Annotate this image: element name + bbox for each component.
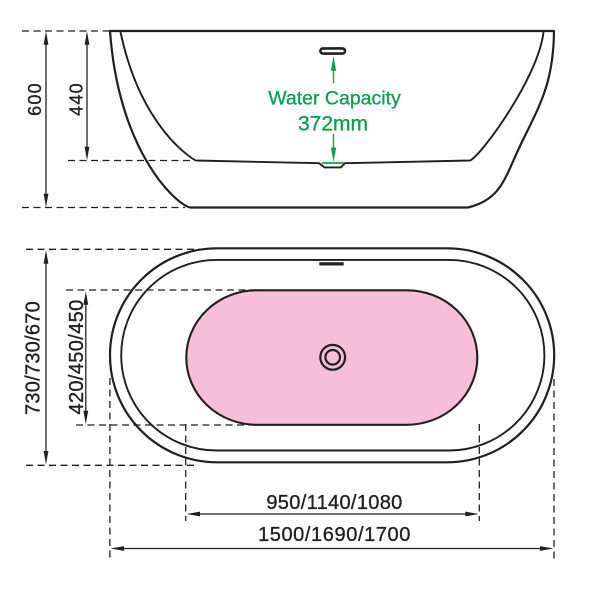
svg-text:950/1140/1080: 950/1140/1080 xyxy=(266,492,402,514)
svg-text:600: 600 xyxy=(25,82,45,116)
svg-text:372mm: 372mm xyxy=(298,113,368,136)
svg-text:Water Capacity: Water Capacity xyxy=(268,88,401,110)
svg-text:420/450/450: 420/450/450 xyxy=(66,299,88,414)
svg-text:730/730/670: 730/730/670 xyxy=(23,301,45,415)
svg-text:440: 440 xyxy=(67,82,87,116)
svg-text:1500/1690/1700: 1500/1690/1700 xyxy=(258,524,411,546)
